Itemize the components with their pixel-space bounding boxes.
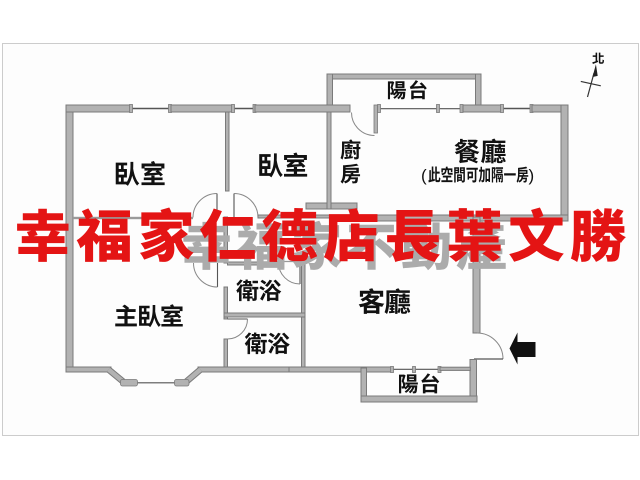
svg-text:): ) bbox=[529, 166, 535, 185]
svg-text:(: ( bbox=[421, 166, 427, 185]
